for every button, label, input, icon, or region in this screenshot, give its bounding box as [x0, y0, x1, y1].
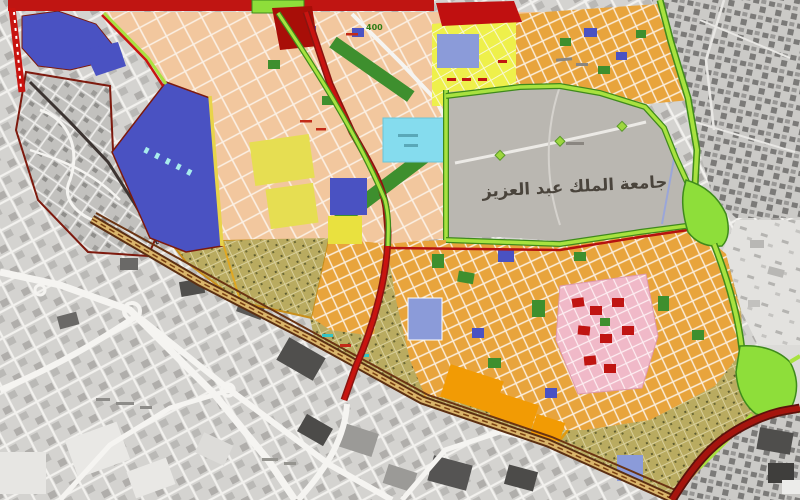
yellow-subdistrict — [265, 183, 318, 229]
pink-district — [556, 274, 658, 394]
yellow-subdistrict — [249, 134, 315, 186]
top-red-road — [302, 0, 434, 11]
facility-block-blue — [437, 34, 479, 68]
facility-block-blue — [330, 178, 367, 215]
cyan-facility — [383, 118, 448, 162]
top-red-road — [8, 0, 254, 11]
district-number-label: 400 — [366, 23, 383, 32]
red-block — [436, 1, 522, 26]
map-screenshot: جامعة الملك عبد العزيز 400 — [0, 0, 800, 500]
facility-block-blue — [408, 298, 442, 340]
zoning-map: جامعة الملك عبد العزيز 400 — [0, 0, 800, 500]
facility-block-yellow — [328, 216, 362, 244]
